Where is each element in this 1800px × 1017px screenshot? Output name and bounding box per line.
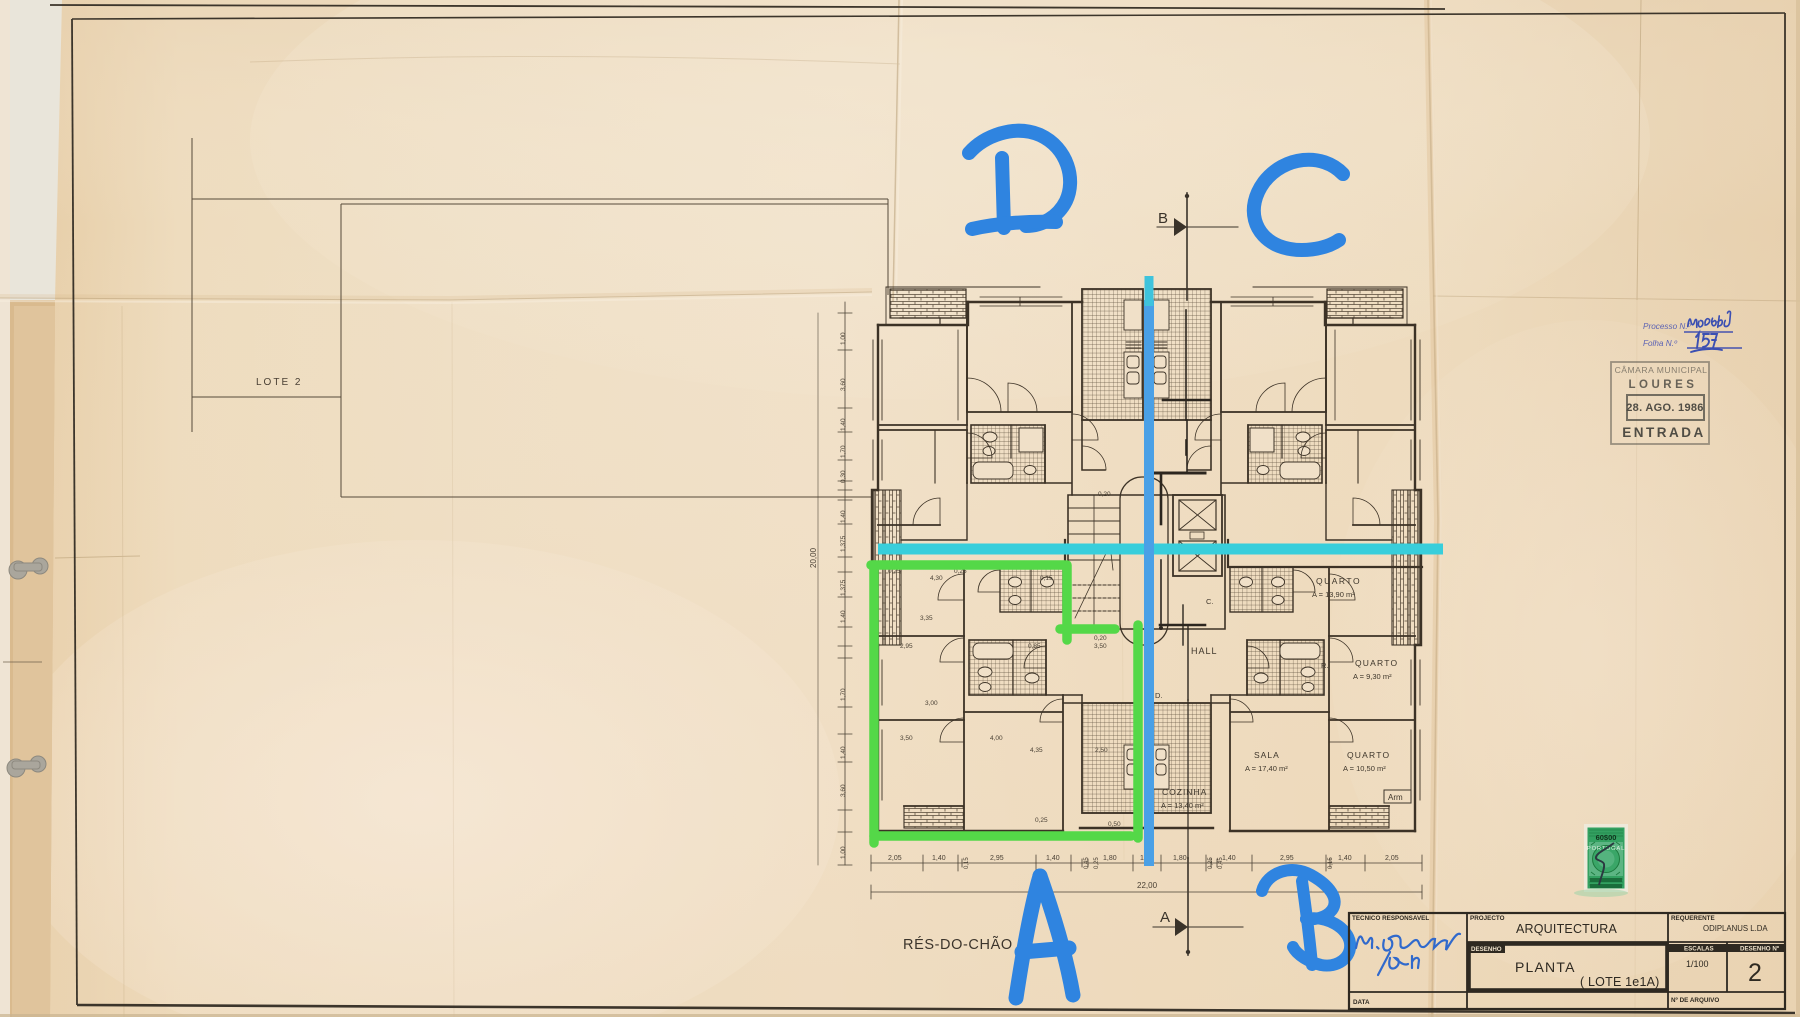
svg-text:28. AGO. 1986: 28. AGO. 1986 <box>1626 402 1703 414</box>
svg-text:2,95: 2,95 <box>1280 855 1294 862</box>
svg-text:B: B <box>1158 210 1168 227</box>
svg-text:0,25: 0,25 <box>1208 857 1214 869</box>
svg-text:1,40: 1,40 <box>1338 855 1352 862</box>
svg-text:A = 13,40 m²: A = 13,40 m² <box>1161 801 1204 810</box>
svg-text:1,375: 1,375 <box>840 579 847 596</box>
svg-text:3,50: 3,50 <box>900 735 913 742</box>
svg-text:QUARTO: QUARTO <box>1316 576 1361 586</box>
svg-text:2,50: 2,50 <box>1095 747 1108 754</box>
svg-text:2,95: 2,95 <box>990 855 1004 862</box>
svg-text:HALL: HALL <box>1191 646 1218 656</box>
svg-text:2: 2 <box>1748 959 1762 987</box>
svg-text:1,40: 1,40 <box>1046 855 1060 862</box>
svg-text:QUARTO: QUARTO <box>1355 658 1398 668</box>
svg-text:DESENHO: DESENHO <box>1471 946 1502 953</box>
svg-text:1,70: 1,70 <box>840 688 847 701</box>
svg-text:4,35: 4,35 <box>1030 747 1043 754</box>
svg-text:0,50: 0,50 <box>1108 821 1121 828</box>
svg-text:0,85: 0,85 <box>1028 643 1041 650</box>
svg-text:PLANTA: PLANTA <box>1515 959 1576 975</box>
svg-text:3,50: 3,50 <box>1094 643 1107 650</box>
svg-text:R.: R. <box>1321 661 1329 670</box>
svg-text:4,30: 4,30 <box>930 575 943 582</box>
svg-text:2,95: 2,95 <box>900 643 913 650</box>
svg-text:ODIPLANUS L.DA: ODIPLANUS L.DA <box>1703 924 1768 933</box>
svg-text:0,25: 0,25 <box>1035 817 1048 824</box>
svg-text:PROJECTO: PROJECTO <box>1470 915 1505 922</box>
svg-text:2,05: 2,05 <box>888 855 902 862</box>
svg-text:C.: C. <box>1206 597 1214 606</box>
svg-text:ESCALAS: ESCALAS <box>1684 946 1714 953</box>
svg-text:1/100: 1/100 <box>1686 959 1709 969</box>
svg-text:0,20: 0,20 <box>1094 635 1107 642</box>
svg-text:A = 10,50 m²: A = 10,50 m² <box>1343 764 1386 773</box>
svg-text:1,80: 1,80 <box>1173 855 1187 862</box>
svg-text:20,00: 20,00 <box>809 547 818 568</box>
svg-text:SALA: SALA <box>1254 750 1280 760</box>
svg-text:A = 13,90 m²: A = 13,90 m² <box>1312 590 1355 599</box>
svg-text:0,15: 0,15 <box>964 857 970 869</box>
svg-text:1,40: 1,40 <box>840 510 847 523</box>
svg-text:1,375: 1,375 <box>840 535 847 552</box>
svg-text:1,40: 1,40 <box>840 610 847 623</box>
svg-text:RÉS-DO-CHÃO: RÉS-DO-CHÃO <box>903 936 1013 953</box>
svg-text:1,70: 1,70 <box>840 445 847 458</box>
svg-text:1,40: 1,40 <box>840 746 847 759</box>
svg-text:( LOTE 1e1A): ( LOTE 1e1A) <box>1580 975 1660 989</box>
svg-text:LOTE 2: LOTE 2 <box>256 377 302 388</box>
svg-text:REQUERENTE: REQUERENTE <box>1671 915 1715 922</box>
svg-text:DATA: DATA <box>1353 999 1370 1006</box>
svg-text:A: A <box>1160 909 1170 926</box>
svg-text:LOURES: LOURES <box>1629 379 1698 391</box>
svg-text:3,60: 3,60 <box>840 784 847 797</box>
svg-text:A = 17,40 m²: A = 17,40 m² <box>1245 764 1288 773</box>
svg-text:0,45: 0,45 <box>1218 857 1224 869</box>
svg-text:DESENHO Nº: DESENHO Nº <box>1740 946 1780 953</box>
svg-text:60$00: 60$00 <box>1596 833 1617 842</box>
svg-text:1,00: 1,00 <box>840 332 847 345</box>
svg-text:CÂMARA MUNICIPAL: CÂMARA MUNICIPAL <box>1615 365 1708 375</box>
svg-text:1,40: 1,40 <box>1222 855 1236 862</box>
svg-text:4,00: 4,00 <box>990 735 1003 742</box>
svg-text:2,05: 2,05 <box>1385 855 1399 862</box>
svg-text:3,35: 3,35 <box>920 615 933 622</box>
svg-text:0,45: 0,45 <box>1084 857 1090 869</box>
svg-text:D.: D. <box>1155 691 1163 700</box>
svg-text:0,30: 0,30 <box>840 470 847 483</box>
svg-text:0,25: 0,25 <box>1094 857 1100 869</box>
svg-text:22,00: 22,00 <box>1137 881 1158 890</box>
svg-text:1,00: 1,00 <box>840 846 847 859</box>
svg-text:1,40: 1,40 <box>932 855 946 862</box>
svg-text:Nº DE ARQUIVO: Nº DE ARQUIVO <box>1671 997 1719 1004</box>
svg-text:0,15: 0,15 <box>1040 575 1053 582</box>
svg-text:0,15: 0,15 <box>1328 857 1334 869</box>
svg-text:TECNICO RESPONSAVEL: TECNICO RESPONSAVEL <box>1352 915 1429 922</box>
svg-text:1,40: 1,40 <box>840 418 847 431</box>
svg-text:A = 9,30 m²: A = 9,30 m² <box>1353 672 1392 681</box>
svg-text:ENTRADA: ENTRADA <box>1622 425 1706 440</box>
svg-text:0,20: 0,20 <box>1098 491 1111 498</box>
svg-text:3,60: 3,60 <box>840 378 847 391</box>
svg-text:Folha N.º: Folha N.º <box>1643 339 1678 348</box>
svg-text:Arm: Arm <box>1388 793 1403 802</box>
svg-text:Processo N.º: Processo N.º <box>1643 322 1692 331</box>
svg-text:ARQUITECTURA: ARQUITECTURA <box>1516 922 1617 936</box>
svg-text:COZINHA: COZINHA <box>1162 787 1207 797</box>
svg-text:1,80: 1,80 <box>1103 855 1117 862</box>
svg-text:QUARTO: QUARTO <box>1347 750 1390 760</box>
svg-text:3,00: 3,00 <box>925 700 938 707</box>
